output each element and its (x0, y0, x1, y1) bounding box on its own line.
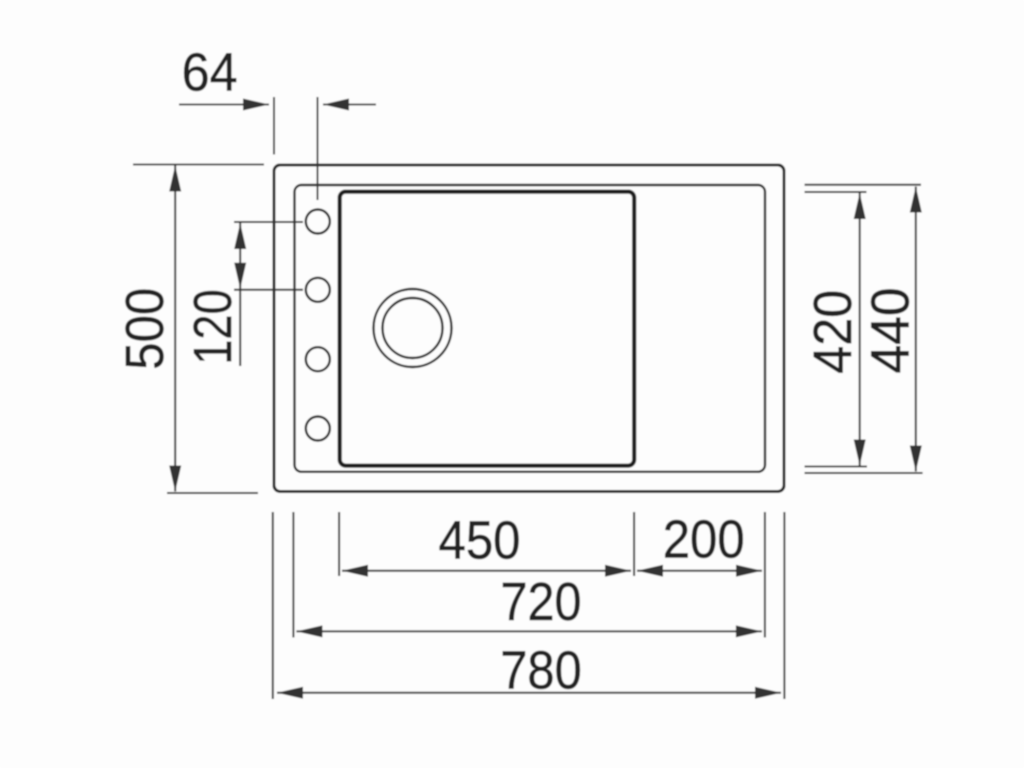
svg-text:780: 780 (500, 640, 582, 700)
svg-text:500: 500 (115, 288, 175, 370)
svg-text:440: 440 (861, 288, 921, 374)
svg-text:120: 120 (183, 289, 243, 365)
svg-text:420: 420 (803, 290, 863, 374)
svg-text:200: 200 (663, 510, 745, 570)
svg-text:720: 720 (501, 572, 582, 632)
svg-text:450: 450 (439, 511, 521, 571)
svg-text:64: 64 (182, 43, 238, 103)
